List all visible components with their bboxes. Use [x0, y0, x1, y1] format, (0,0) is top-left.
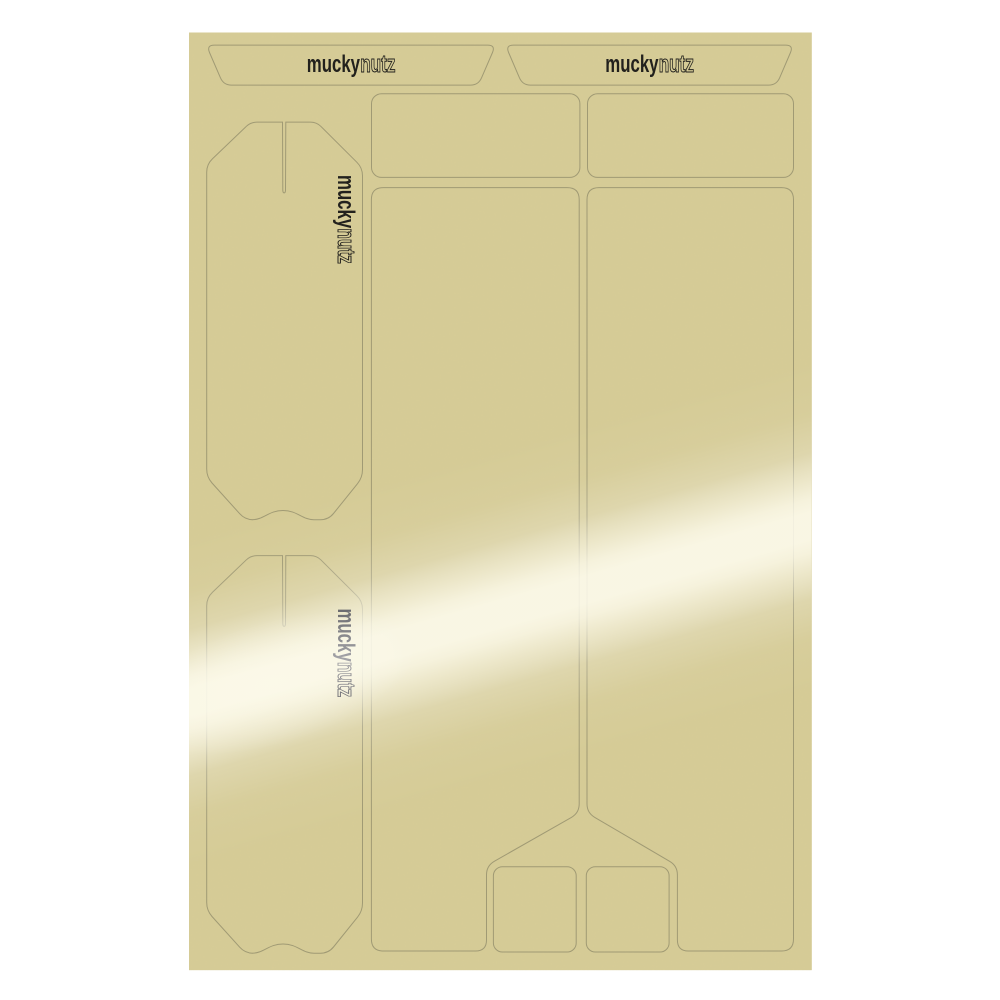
- svg-text:mucky: mucky: [332, 609, 358, 663]
- svg-text:nutz: nutz: [332, 662, 358, 697]
